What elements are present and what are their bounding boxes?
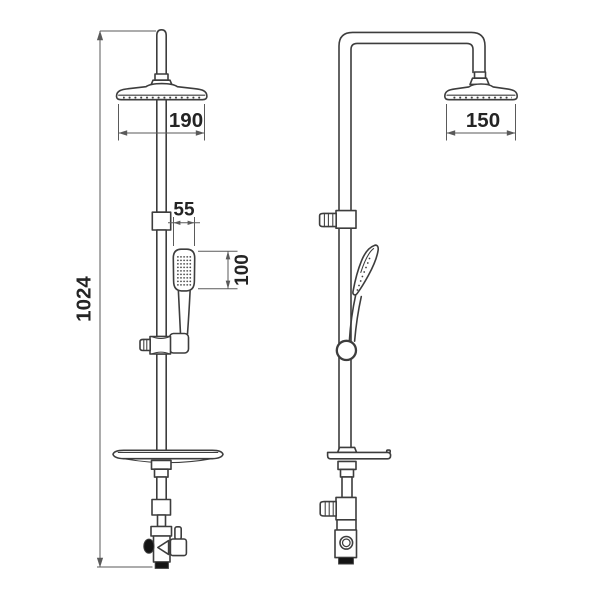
valve-collar-side [337, 520, 356, 530]
nozzles-side [450, 96, 512, 99]
riser-pipe-front-low [157, 354, 166, 450]
shower-arm-inner-side [351, 43, 473, 450]
side-head-width-label: 150 [466, 109, 500, 132]
arrow-up-icon [226, 251, 231, 259]
dim-handshower-height: 100 [198, 251, 253, 289]
front-head-width-label: 190 [169, 109, 203, 132]
slider-holder-front [140, 334, 189, 355]
diverter-pin-front [175, 527, 181, 540]
outlet-front [155, 562, 168, 569]
tray-collar-side [338, 461, 356, 469]
riser-pipe-front-mid [157, 230, 166, 337]
riser-pipe-cap-front [157, 30, 166, 75]
hand-shower-face-dots [177, 255, 191, 287]
valve-knob-front [144, 539, 154, 553]
overall-height-label: 1024 [73, 276, 96, 322]
tray-collar-front [152, 460, 172, 469]
overhead-shower-head-side [445, 84, 517, 100]
arrow-left-icon [174, 221, 181, 225]
wall-bracket-lower-side [320, 497, 356, 519]
arrow-up-icon [97, 31, 103, 41]
hand-shower-handle-front [178, 291, 180, 334]
dim-overall-height: 1024 [73, 31, 157, 568]
arrow-down-icon [226, 281, 231, 289]
handshower-height-label: 100 [232, 254, 253, 286]
shower-column-technical-drawing: 1024 190 150 55 100 [0, 0, 600, 600]
holder-body-front [150, 337, 171, 355]
pipe-sleeve-front [152, 500, 171, 516]
slider-ring-side [337, 341, 356, 360]
arrow-left-icon [119, 130, 128, 136]
holder-knob-front [140, 339, 150, 350]
nozzles-front [123, 96, 201, 99]
valve-collar-front [151, 527, 172, 537]
mixer-valve-front [144, 527, 187, 569]
shower-arm-nut-side [470, 72, 489, 84]
arrow-right-icon [507, 130, 516, 136]
valve-port-inner [343, 539, 351, 547]
hand-shower-blade-side [353, 245, 378, 295]
wall-bracket-upper-side [320, 211, 356, 229]
arrow-down-icon [97, 558, 103, 568]
dim-side-head-width: 150 [447, 104, 516, 141]
mixer-valve-side [335, 520, 357, 564]
holder-cup-front [170, 334, 189, 354]
arrow-right-icon [188, 221, 195, 225]
hand-shower-front [173, 249, 194, 334]
hand-shower-side [337, 245, 378, 360]
riser-pipe-front [157, 100, 166, 213]
overhead-shower-head-front [117, 84, 207, 100]
outlet-side [339, 557, 354, 564]
diverter-body-front [170, 539, 186, 556]
soap-dish-side [328, 447, 391, 458]
wall-connector-front [152, 212, 170, 230]
dim-handshower-width: 55 [168, 200, 200, 247]
handshower-width-label: 55 [173, 200, 195, 221]
arrow-left-icon [447, 130, 456, 136]
bracket-knob-lower [320, 502, 336, 516]
dimensions: 1024 190 150 55 100 [73, 31, 516, 568]
